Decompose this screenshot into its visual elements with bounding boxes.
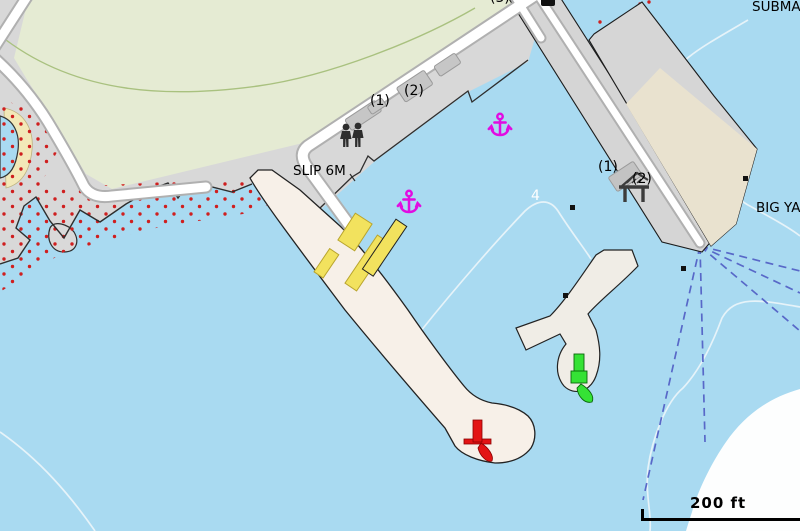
label-berth-1-west: (1) (370, 94, 390, 109)
scale-bar-label: 200 ft (690, 494, 746, 512)
label-slip-6m: SLIP 6M (293, 164, 346, 179)
label-berth-2-west: (2) (404, 84, 424, 99)
scale-bar-line (641, 518, 800, 521)
label-berth-1-east: (1) (598, 160, 618, 175)
harbour-icon (541, 0, 555, 6)
label-big-yacht: BIG YA (756, 201, 800, 216)
label-berth-3: (3) (490, 0, 510, 6)
label-berth-2-east: (2) (632, 172, 652, 187)
chart-drawing (0, 0, 800, 531)
scale-bar-tick (641, 509, 644, 521)
label-submarine: SUBMAR (752, 0, 800, 15)
depth-sounding: 4 (531, 189, 540, 204)
nautical-chart-canvas[interactable]: SLIP 6M SUBMAR BIG YA (1) (2) (3) (1) (2… (0, 0, 800, 531)
